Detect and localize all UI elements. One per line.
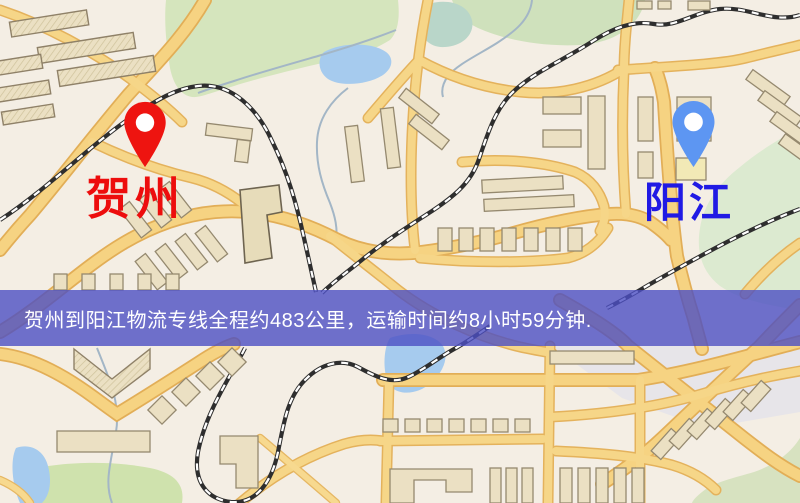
route-info-text: 贺州到阳江物流专线全程约483公里，运输时间约8小时59分钟. bbox=[24, 304, 592, 333]
destination-city-label: 阳江 bbox=[644, 182, 734, 224]
origin-city-label: 贺州 bbox=[86, 176, 184, 221]
red-map-pin-icon bbox=[122, 100, 168, 169]
route-info-banner: 贺州到阳江物流专线全程约483公里，运输时间约8小时59分钟. bbox=[0, 290, 800, 346]
origin-pin[interactable] bbox=[122, 100, 168, 169]
blue-map-pin-icon bbox=[670, 99, 717, 169]
map-view: 贺州 阳江 贺州到阳江物流专线全程约483公里，运输时间约8小时59分钟. bbox=[0, 0, 800, 503]
map-artwork bbox=[0, 0, 800, 503]
destination-pin[interactable] bbox=[670, 99, 717, 169]
